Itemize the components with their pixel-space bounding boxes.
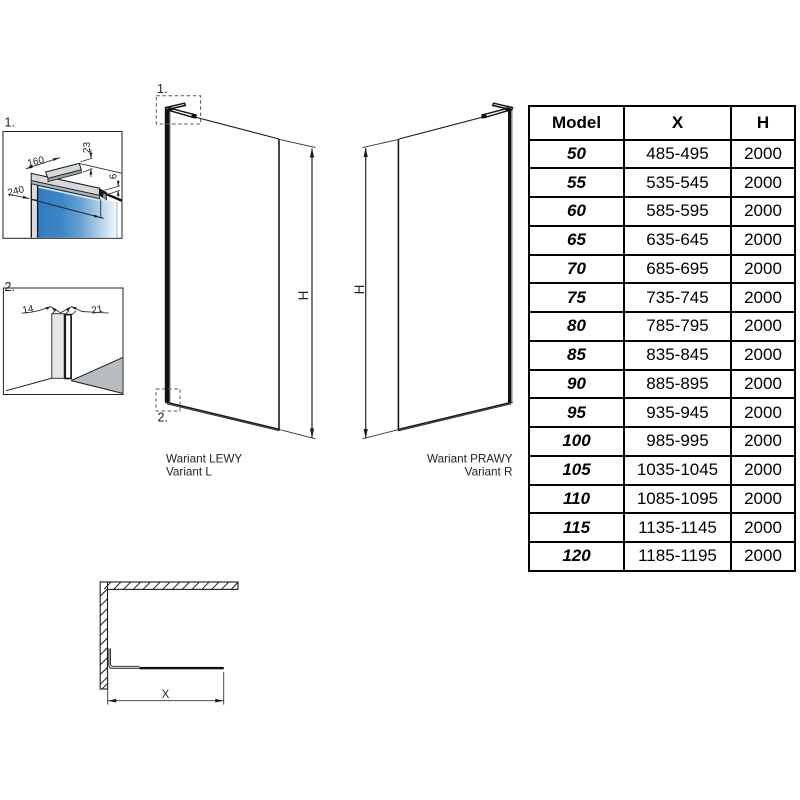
- svg-text:1.: 1.: [157, 82, 167, 96]
- svg-text:23: 23: [82, 142, 93, 154]
- svg-text:H: H: [352, 285, 367, 295]
- svg-text:2.: 2.: [5, 280, 15, 294]
- svg-text:Wariant LEWY: Wariant LEWY: [166, 453, 242, 466]
- svg-text:Variant R: Variant R: [465, 466, 513, 479]
- svg-text:Wariant PRAWY: Wariant PRAWY: [427, 453, 513, 466]
- svg-text:1.: 1.: [5, 116, 15, 130]
- svg-text:6: 6: [109, 173, 120, 179]
- svg-text:2.: 2.: [158, 411, 168, 425]
- svg-text:X: X: [162, 689, 170, 701]
- svg-text:Variant L: Variant L: [166, 466, 212, 479]
- svg-text:H: H: [296, 291, 311, 301]
